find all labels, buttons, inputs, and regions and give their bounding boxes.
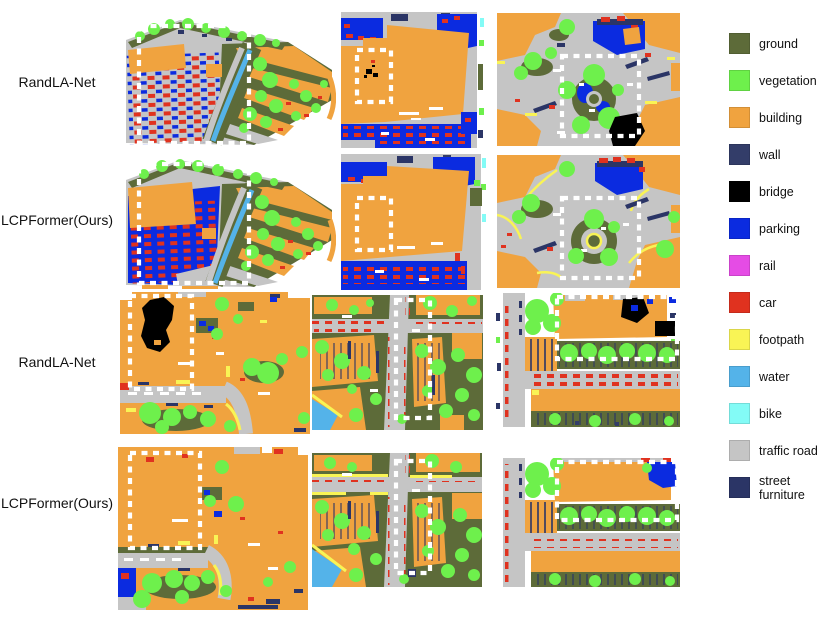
segmentation-panel-lcpformer-scene3 bbox=[497, 155, 680, 288]
segmentation-panel-lcpformer-scene6 bbox=[495, 458, 680, 587]
segmentation-panel-randla-scene3 bbox=[497, 13, 680, 146]
legend-swatch bbox=[729, 107, 750, 128]
segmentation-panel-randla-scene6 bbox=[495, 293, 680, 427]
legend-swatch bbox=[729, 440, 750, 461]
segmentation-panel-lcpformer-scene4 bbox=[118, 447, 308, 610]
legend-label: bike bbox=[759, 407, 821, 421]
legend-item-traffic-road: traffic road bbox=[729, 440, 829, 461]
legend-swatch bbox=[729, 33, 750, 54]
legend-item-footpath: footpath bbox=[729, 329, 829, 350]
legend-item-parking: parking bbox=[729, 218, 829, 239]
legend-item-building: building bbox=[729, 107, 829, 128]
legend-label: wall bbox=[759, 148, 821, 162]
legend-swatch bbox=[729, 403, 750, 424]
legend-item-car: car bbox=[729, 292, 829, 313]
legend-swatch bbox=[729, 255, 750, 276]
row-label-randla-net-2: RandLA-Net bbox=[0, 354, 114, 370]
legend-swatch bbox=[729, 366, 750, 387]
legend-label: footpath bbox=[759, 333, 821, 347]
legend-swatch bbox=[729, 329, 750, 350]
segmentation-panel-lcpformer-scene5 bbox=[312, 453, 482, 587]
legend-label: vegetation bbox=[759, 74, 821, 88]
segmentation-panel-randla-scene1 bbox=[118, 12, 336, 148]
legend-item-bike: bike bbox=[729, 403, 829, 424]
legend: ground vegetation building wall bridge p… bbox=[729, 33, 829, 498]
row-label-lcpformer-1: LCPFormer(Ours) bbox=[0, 212, 114, 228]
legend-label: parking bbox=[759, 222, 821, 236]
legend-label: ground bbox=[759, 37, 821, 51]
legend-label: street furniture bbox=[759, 474, 821, 502]
legend-swatch bbox=[729, 218, 750, 239]
legend-item-wall: wall bbox=[729, 144, 829, 165]
legend-label: traffic road bbox=[759, 444, 821, 458]
segmentation-panel-randla-scene5 bbox=[312, 295, 483, 430]
segmentation-panel-randla-scene2 bbox=[341, 12, 489, 148]
legend-swatch bbox=[729, 144, 750, 165]
figure-canvas: RandLA-Net LCPFormer(Ours) RandLA-Net LC… bbox=[0, 0, 831, 619]
legend-item-street-furniture: street furniture bbox=[729, 477, 829, 498]
segmentation-panel-lcpformer-scene1 bbox=[118, 152, 336, 290]
legend-item-bridge: bridge bbox=[729, 181, 829, 202]
legend-label: car bbox=[759, 296, 821, 310]
legend-item-ground: ground bbox=[729, 33, 829, 54]
legend-item-water: water bbox=[729, 366, 829, 387]
legend-swatch bbox=[729, 70, 750, 91]
legend-swatch bbox=[729, 181, 750, 202]
legend-item-rail: rail bbox=[729, 255, 829, 276]
legend-item-vegetation: vegetation bbox=[729, 70, 829, 91]
legend-label: water bbox=[759, 370, 821, 384]
legend-label: bridge bbox=[759, 185, 821, 199]
segmentation-panel-randla-scene4 bbox=[120, 292, 310, 434]
legend-label: rail bbox=[759, 259, 821, 273]
row-label-lcpformer-2: LCPFormer(Ours) bbox=[0, 495, 114, 511]
segmentation-panel-lcpformer-scene2 bbox=[341, 154, 489, 290]
legend-swatch bbox=[729, 477, 750, 498]
row-label-randla-net-1: RandLA-Net bbox=[0, 74, 114, 90]
legend-label: building bbox=[759, 111, 821, 125]
legend-swatch bbox=[729, 292, 750, 313]
